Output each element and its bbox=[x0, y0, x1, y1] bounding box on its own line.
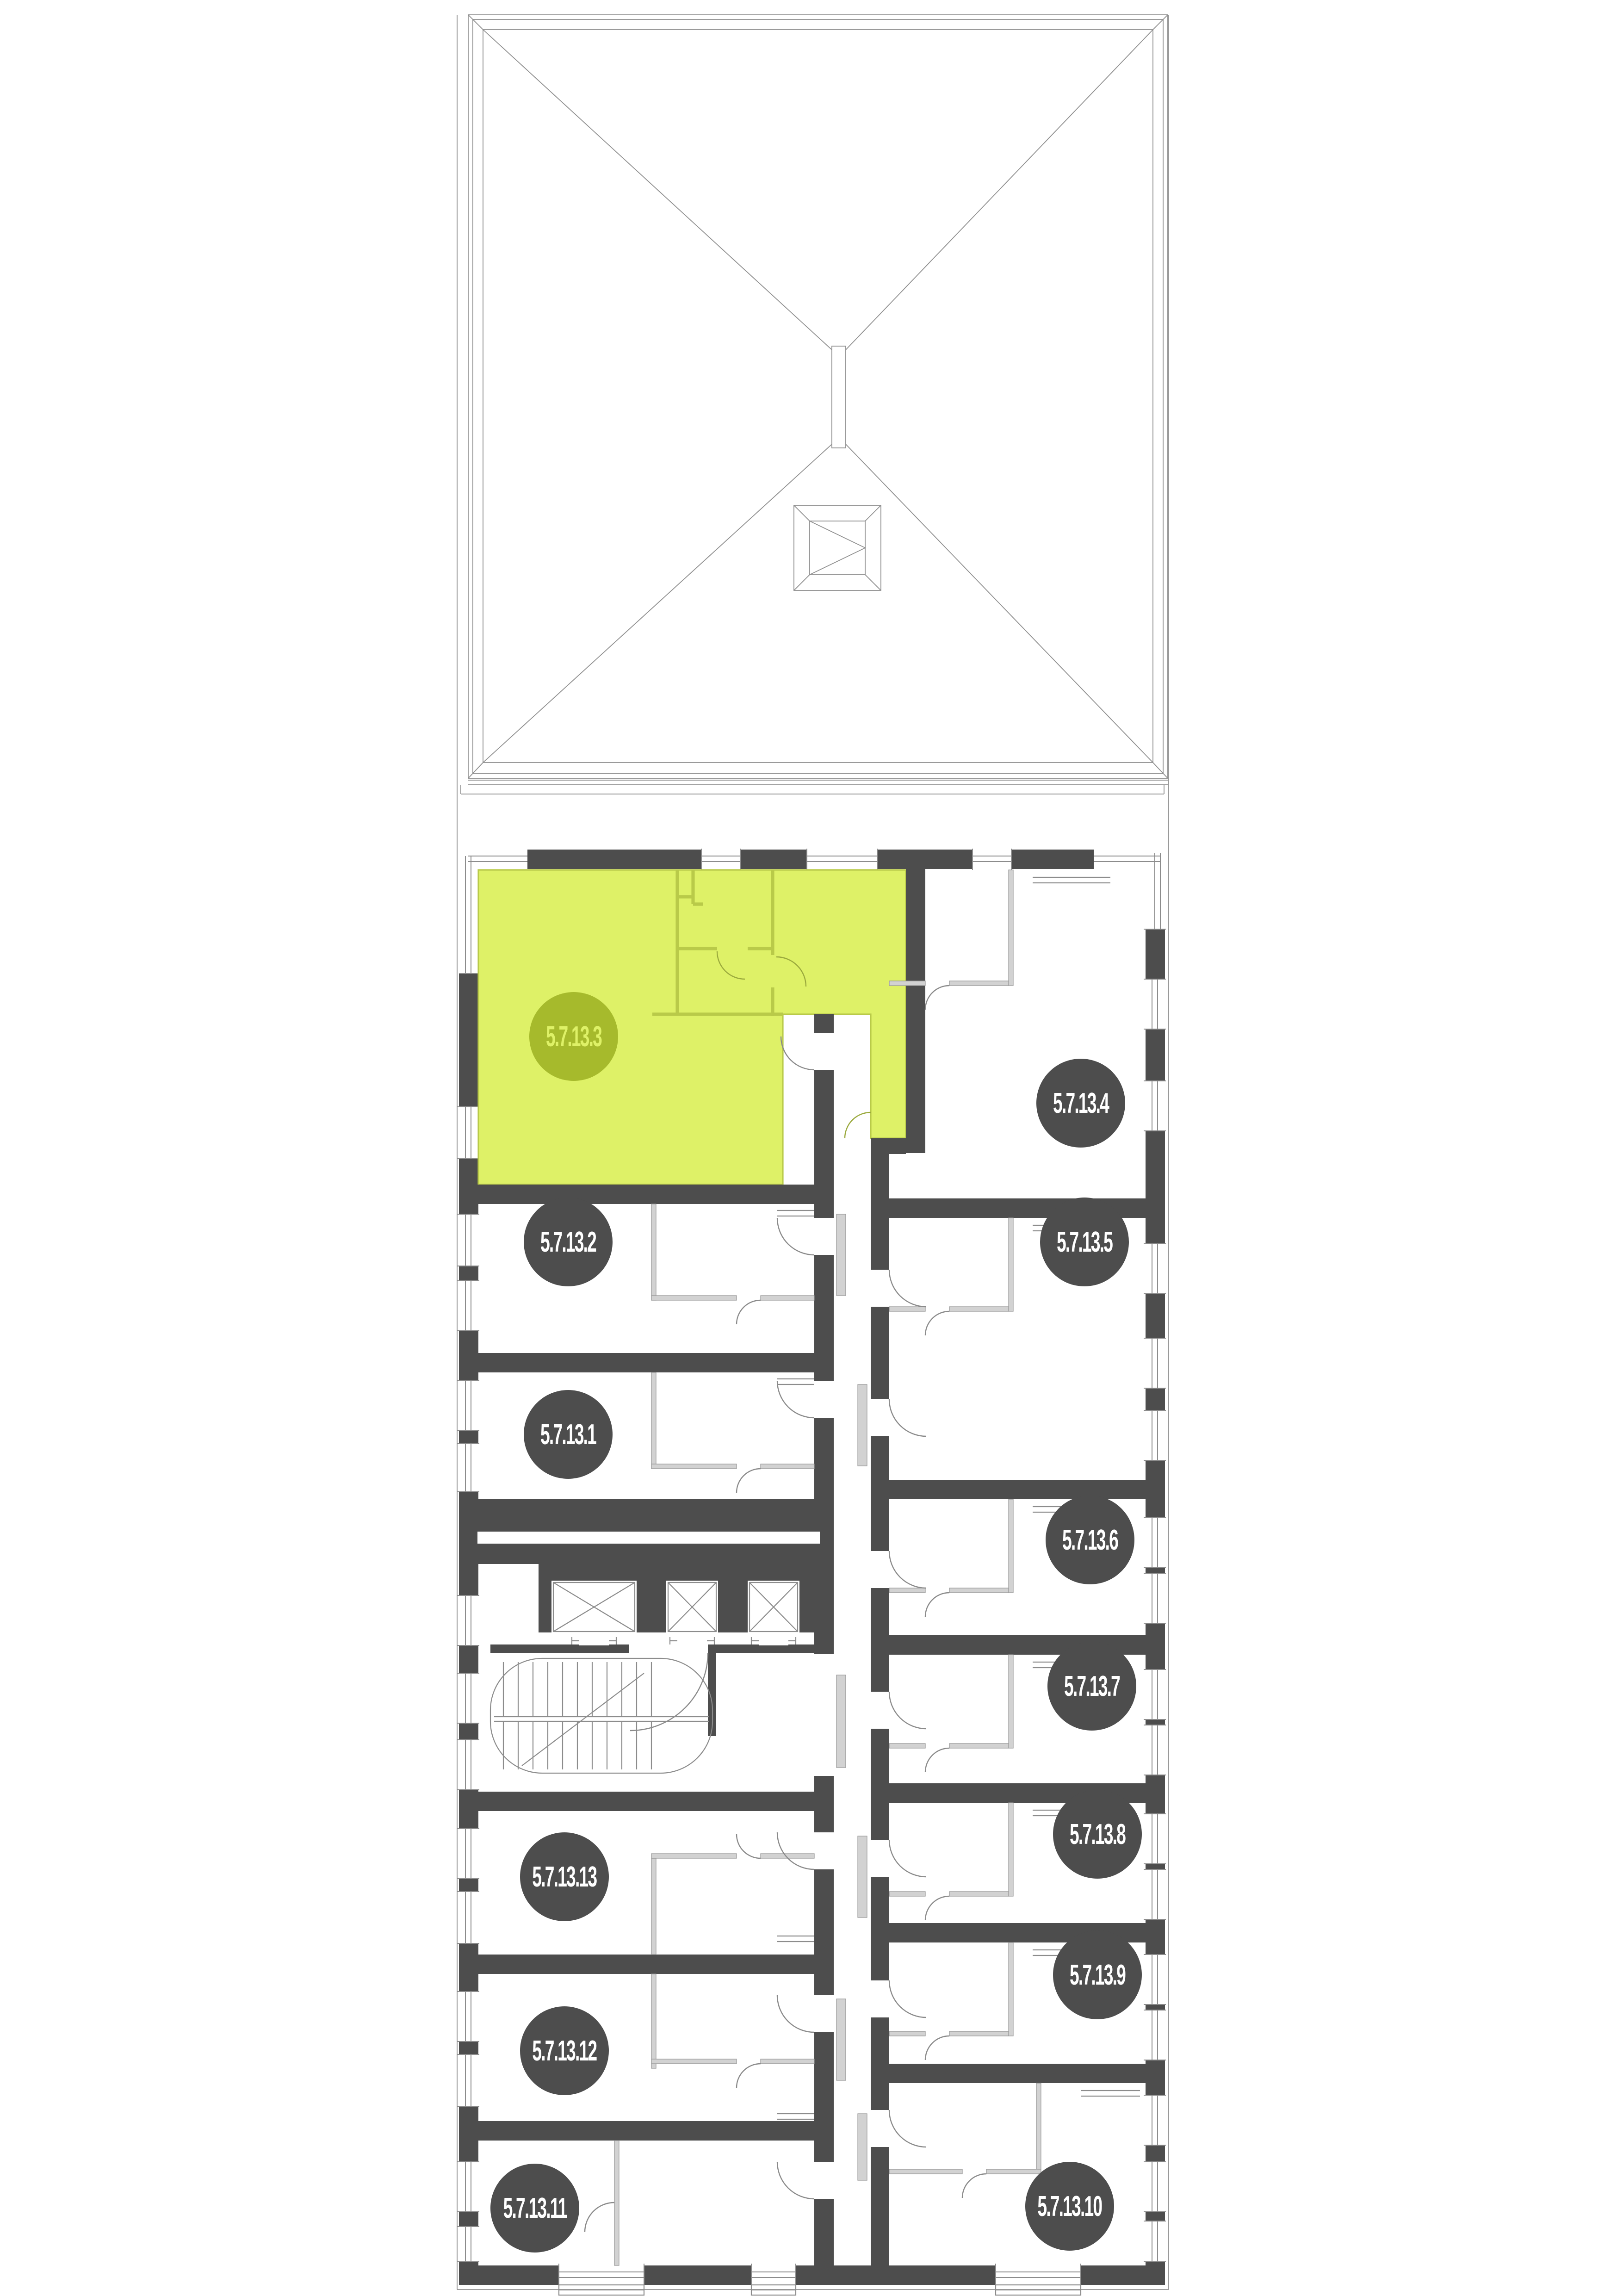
unit-badge-5-7-13-6[interactable]: 5.7.13.6 bbox=[1046, 1496, 1134, 1584]
unit-badge-5-7-13-12[interactable]: 5.7.13.12 bbox=[520, 2006, 609, 2095]
unit-badge-5-7-13-7[interactable]: 5.7.13.7 bbox=[1047, 1642, 1136, 1731]
elevator-icon bbox=[553, 1582, 635, 1645]
unit-badge-5-7-13-13[interactable]: 5.7.13.13 bbox=[520, 1832, 609, 1921]
unit-badge-5-7-13-5[interactable]: 5.7.13.5 bbox=[1040, 1198, 1129, 1286]
unit-badge-5-7-13-4[interactable]: 5.7.13.4 bbox=[1036, 1059, 1125, 1148]
elevator-icon bbox=[750, 1582, 798, 1645]
roof-hatch-icon bbox=[794, 505, 881, 590]
unit-number: 5.7.13.10 bbox=[1038, 2190, 1102, 2223]
unit-badge-5-7-13-9[interactable]: 5.7.13.9 bbox=[1053, 1930, 1142, 2019]
unit-number: 5.7.13.9 bbox=[1070, 1959, 1125, 1992]
unit-number: 5.7.13.3 bbox=[546, 1020, 601, 1053]
elevator-icon bbox=[668, 1582, 716, 1645]
unit-badge-5-7-13-8[interactable]: 5.7.13.8 bbox=[1053, 1790, 1142, 1879]
unit-badge-5-7-13-2[interactable]: 5.7.13.2 bbox=[524, 1198, 613, 1286]
corridor-fixtures bbox=[836, 1214, 867, 2180]
elevator-core bbox=[490, 1564, 834, 1736]
unit-badge-5-7-13-10[interactable]: 5.7.13.10 bbox=[1025, 2162, 1114, 2251]
unit-number: 5.7.13.8 bbox=[1070, 1818, 1125, 1851]
unit-badge-5-7-13-1[interactable]: 5.7.13.1 bbox=[524, 1390, 613, 1479]
floor-plan-drawing bbox=[0, 0, 1623, 2296]
unit-number: 5.7.13.7 bbox=[1064, 1670, 1120, 1703]
unit-badge-5-7-13-3[interactable]: 5.7.13.3 bbox=[529, 992, 618, 1081]
unit-number: 5.7.13.4 bbox=[1053, 1087, 1109, 1120]
unit-number: 5.7.13.12 bbox=[533, 2035, 597, 2067]
unit-number: 5.7.13.13 bbox=[533, 1861, 597, 1893]
unit-number: 5.7.13.2 bbox=[540, 1226, 596, 1259]
unit-number: 5.7.13.1 bbox=[540, 1418, 596, 1451]
floorplan-page: 5.7.13.3 5.7.13.2 5.7.13.1 5.7.13.13 5.7… bbox=[0, 0, 1623, 2296]
staircase-icon bbox=[490, 1658, 712, 1773]
unit-number: 5.7.13.11 bbox=[503, 2192, 567, 2225]
unit-number: 5.7.13.5 bbox=[1057, 1226, 1112, 1259]
unit-badge-5-7-13-11[interactable]: 5.7.13.11 bbox=[490, 2164, 579, 2253]
roof-plan bbox=[461, 15, 1168, 794]
unit-number: 5.7.13.6 bbox=[1062, 1524, 1118, 1557]
